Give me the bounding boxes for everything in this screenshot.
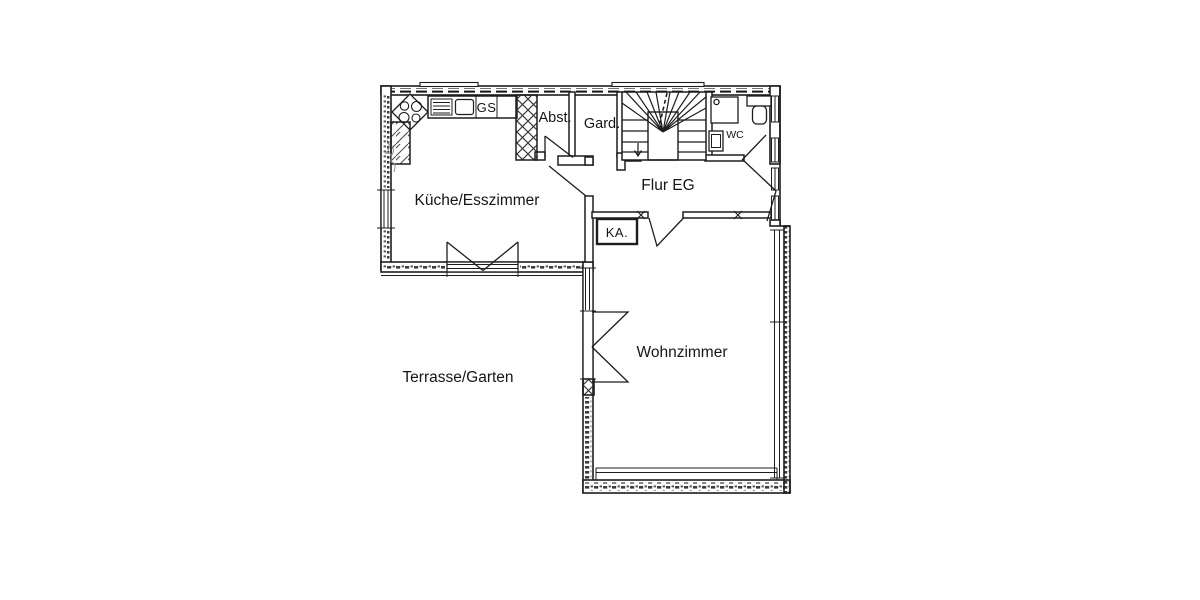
wall-kitchen-bottom-fill-r [520, 264, 591, 270]
staircase [622, 92, 706, 160]
window-wc-right-2 [772, 138, 779, 162]
label-kitchen: Küche/Esszimmer [415, 192, 540, 209]
door-kitchen-flur-swing [549, 166, 586, 196]
label-storage: Abst. [538, 110, 571, 126]
wall-kitchen-east [585, 196, 593, 262]
wash-basin-inner [712, 135, 721, 148]
wall-kitchen-east-top [585, 157, 593, 165]
door-wc-swing [743, 135, 766, 159]
label-chimney: KA. [606, 225, 628, 240]
exterior-walls [377, 83, 790, 494]
window-living-bottom [596, 468, 777, 480]
wc-fixtures [709, 96, 771, 151]
window-kitchen-left [377, 190, 395, 228]
label-wc: WC [726, 129, 744, 141]
wall-top-lip-left [420, 83, 478, 87]
kitchen-fixtures [386, 94, 537, 172]
wall-top-lip-right [612, 83, 704, 87]
wall-living-bottom-fill [585, 482, 788, 491]
wall-top-insulation [384, 88, 777, 92]
floor-plan-svg: Küche/Esszimmer Abst. Gard. Flur EG WC K… [0, 0, 1200, 600]
wall-kitchen-bottom-fill-l [383, 264, 445, 270]
tall-cabinet-right [516, 95, 537, 160]
toilet-cistern [747, 96, 771, 106]
door-kitchen-terrace-threshold [447, 258, 518, 277]
label-dishwasher: GS [477, 100, 497, 115]
door-living-swing [649, 218, 684, 246]
floor-plan-page: Küche/Esszimmer Abst. Gard. Flur EG WC K… [0, 0, 1200, 600]
door-living-terrace-swing [592, 312, 628, 382]
window-living-right [770, 230, 784, 478]
label-living-room: Wohnzimmer [636, 344, 727, 361]
label-hallway: Flur EG [641, 177, 694, 194]
window-wc-right-1 [772, 96, 779, 122]
label-wardrobe: Gard. [584, 116, 620, 132]
toilet-bowl [753, 106, 767, 124]
label-terrace: Terrasse/Garten [402, 369, 513, 386]
wall-left-fill-upper [383, 94, 390, 188]
shower-tray [711, 97, 738, 123]
wall-right-stub [770, 220, 780, 226]
wall-flur-living-right [683, 212, 771, 218]
wall-living-left-fill [585, 397, 592, 480]
tall-cabinet-left [391, 122, 410, 164]
wall-wc-bottom [705, 155, 744, 161]
door-living-terrace-gap [584, 311, 592, 379]
wall-left-fill-lower [383, 230, 390, 260]
wall-right-lower [784, 226, 790, 493]
